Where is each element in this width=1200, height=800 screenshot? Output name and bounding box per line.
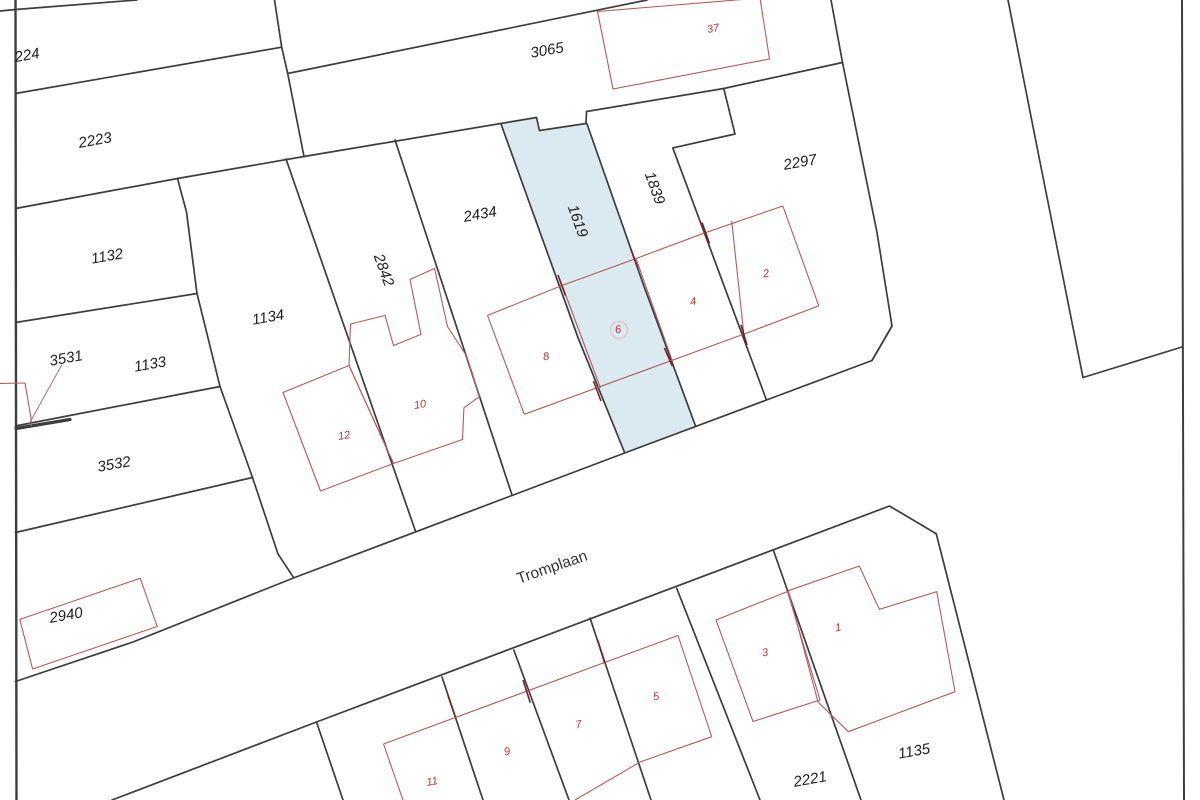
svg-text:12: 12: [337, 429, 351, 443]
svg-text:11: 11: [426, 775, 439, 789]
